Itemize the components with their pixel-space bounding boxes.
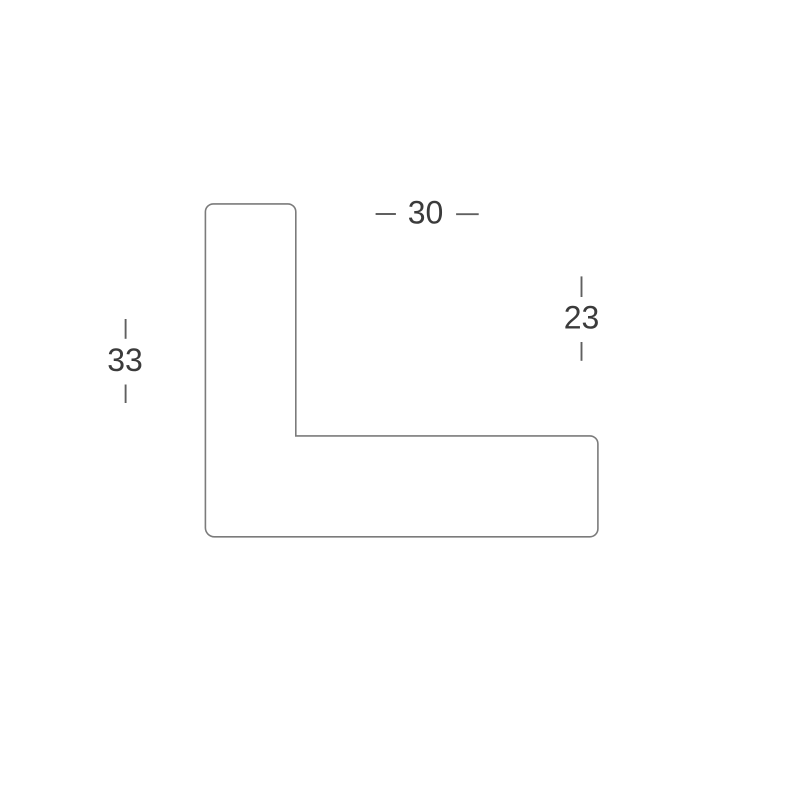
svg-text:23: 23 (564, 300, 600, 336)
svg-text:30: 30 (408, 195, 444, 231)
svg-text:33: 33 (107, 342, 143, 378)
